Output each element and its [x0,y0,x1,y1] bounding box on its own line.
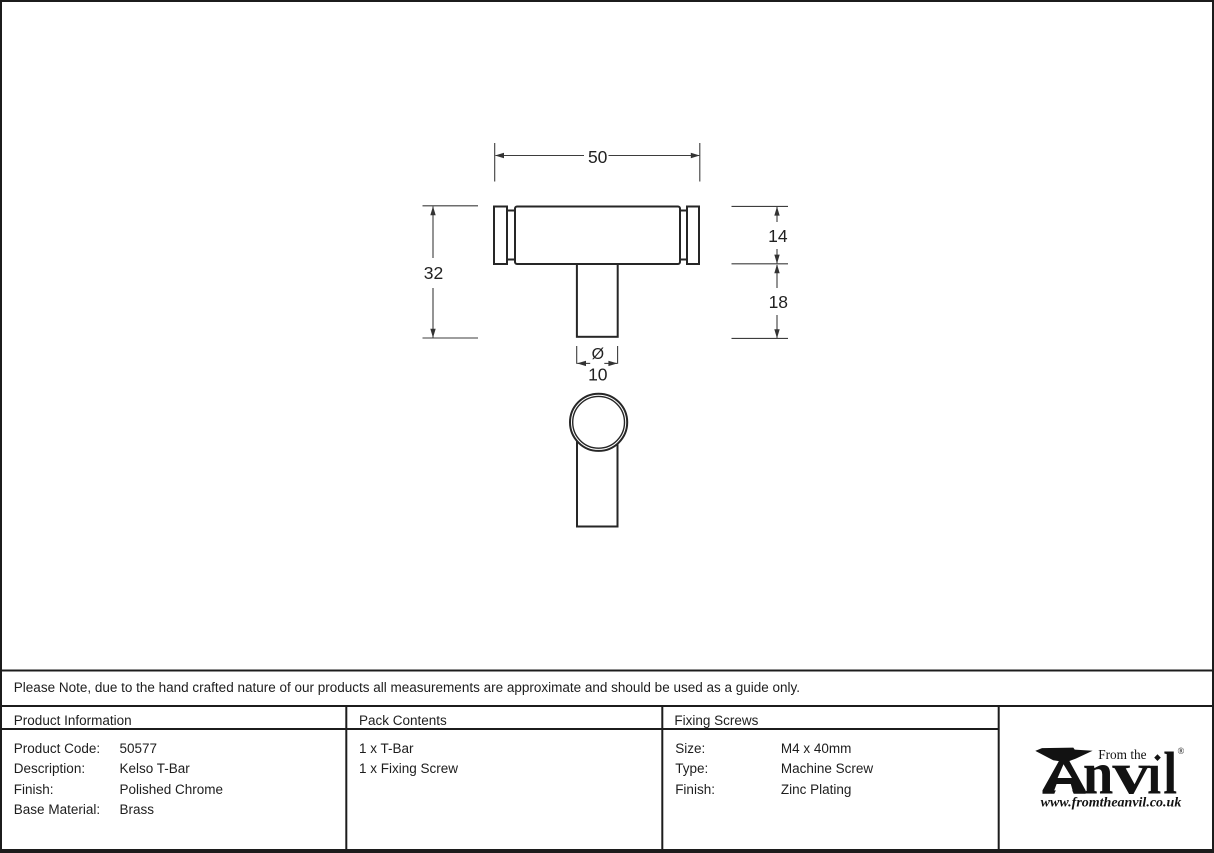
svg-text:50: 50 [588,147,608,167]
svg-text:®: ® [1178,746,1185,756]
svg-text:www.fromtheanvil.co.uk: www.fromtheanvil.co.uk [1041,796,1182,811]
svg-text:14: 14 [768,226,788,246]
svg-text:32: 32 [424,263,443,283]
svg-text:18: 18 [769,292,788,312]
svg-text:Ø: Ø [592,346,604,363]
svg-text:10: 10 [588,365,608,385]
